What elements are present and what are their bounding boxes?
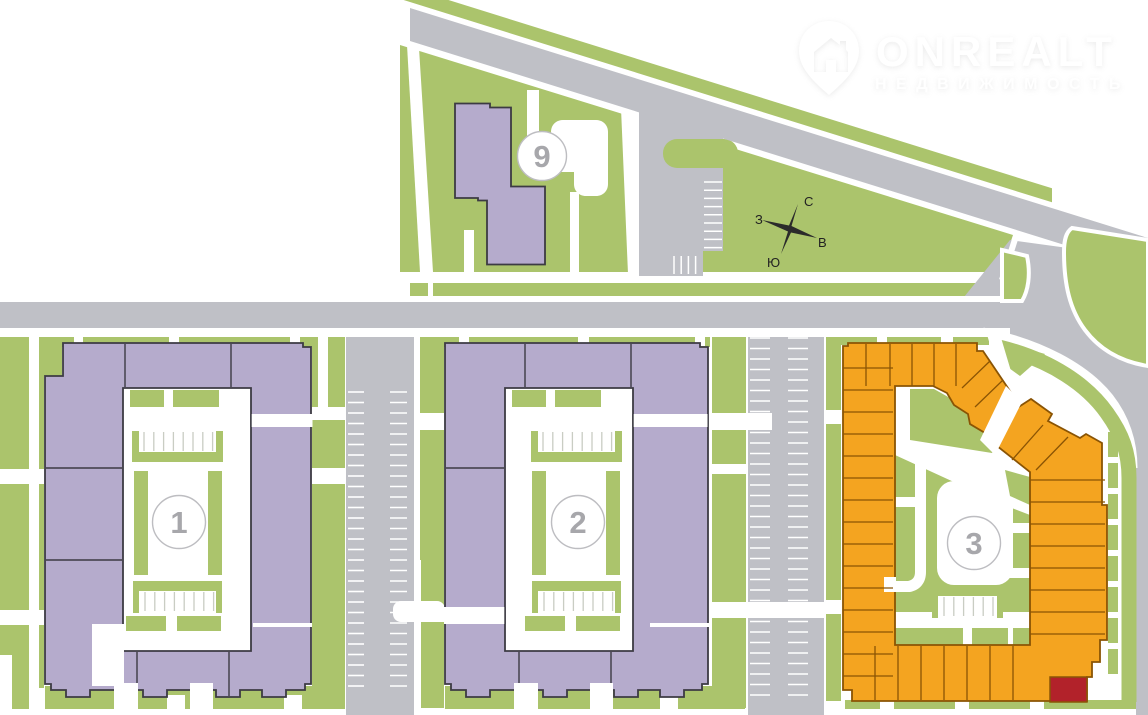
svg-text:ONREALT: ONREALT <box>876 28 1118 75</box>
svg-text:1: 1 <box>170 505 187 540</box>
svg-text:2: 2 <box>569 505 586 540</box>
svg-text:З: З <box>755 212 763 227</box>
svg-text:9: 9 <box>533 139 550 174</box>
svg-text:НЕДВИЖИМОСТЬ: НЕДВИЖИМОСТЬ <box>875 76 1130 93</box>
svg-text:С: С <box>804 194 813 209</box>
svg-text:В: В <box>818 235 827 250</box>
svg-text:3: 3 <box>965 526 982 561</box>
svg-text:Ю: Ю <box>767 255 780 270</box>
